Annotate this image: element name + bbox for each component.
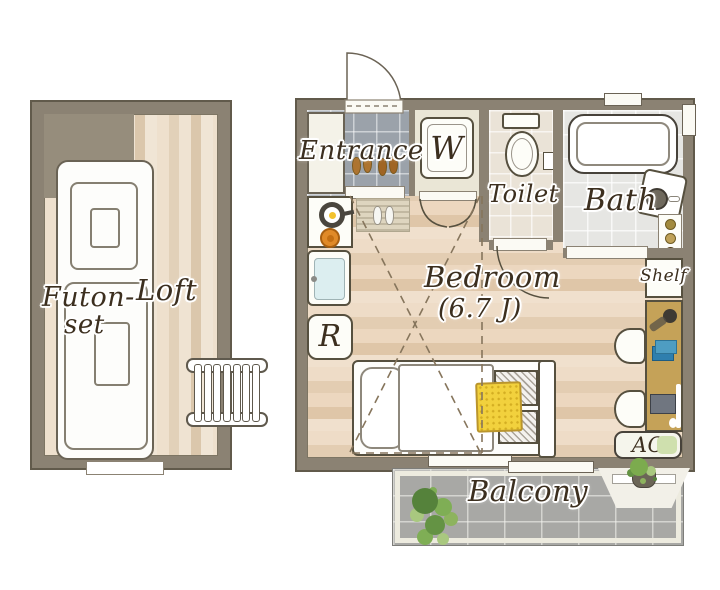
bath-top-window [604,93,642,106]
bath-door [566,246,648,259]
floor-plan: W AC [0,0,720,590]
ladder [186,352,268,434]
bath-side-window [682,104,696,136]
faucet-icon [311,276,317,282]
desk-lamp-arm [648,316,667,333]
shelf-label: Shelf [640,268,687,285]
loft-window [86,461,164,475]
conditioner-bottle-icon [665,233,676,244]
desk-chair-2 [614,390,646,428]
sliding-door [428,455,512,467]
desk-chair [614,328,646,364]
desk [645,300,683,432]
fried-egg-yolk [329,212,336,219]
futon-pillow-inner [90,208,120,248]
washer-door-threshold [419,191,477,201]
shower-handle [668,196,680,202]
yellow-blanket [475,381,523,433]
futon-label-line2: set [64,312,105,338]
futon-label-line1: Futon- [42,284,135,311]
bathtub-icon [568,114,678,174]
balcony-plant-icon [412,488,438,514]
loft-label: Loft [136,276,197,305]
balcony-label: Balcony [468,477,588,506]
fridge-label: R [318,322,341,352]
kitchen-stove [307,196,353,248]
shampoo-bottle-icon [665,219,676,230]
slippers-icon [373,206,382,225]
entrance-label: Entrance [299,138,424,164]
bed [352,360,556,456]
kitchen-mat [356,198,410,232]
bed-headboard [538,360,556,458]
toilet-bowl-icon [505,131,539,177]
bath-label: Bath [584,186,657,216]
washing-machine: W [420,117,474,179]
ladder-rungs [194,364,260,422]
sliding-door-2 [508,461,594,473]
potted-plant-leaves-icon [630,458,648,476]
toilet-label: Toilet [488,182,559,206]
bedroom-label: Bedroom [424,263,561,292]
monitor-icon [650,394,676,414]
mouse-icon [669,418,677,428]
pan-handle [342,210,355,216]
ac-unit: AC [614,431,682,459]
toilet-door-threshold [493,238,547,251]
kitchen-sink [307,250,351,306]
bedroom-size-label: (6.7 J) [438,296,522,322]
wall-washer-toilet [479,110,489,242]
washing-machine-inner [427,124,467,172]
toilet-tank-icon [502,113,540,129]
wall-toilet-bath [553,110,563,242]
books-icon-2 [655,340,677,354]
refrigerator: R [307,314,353,360]
